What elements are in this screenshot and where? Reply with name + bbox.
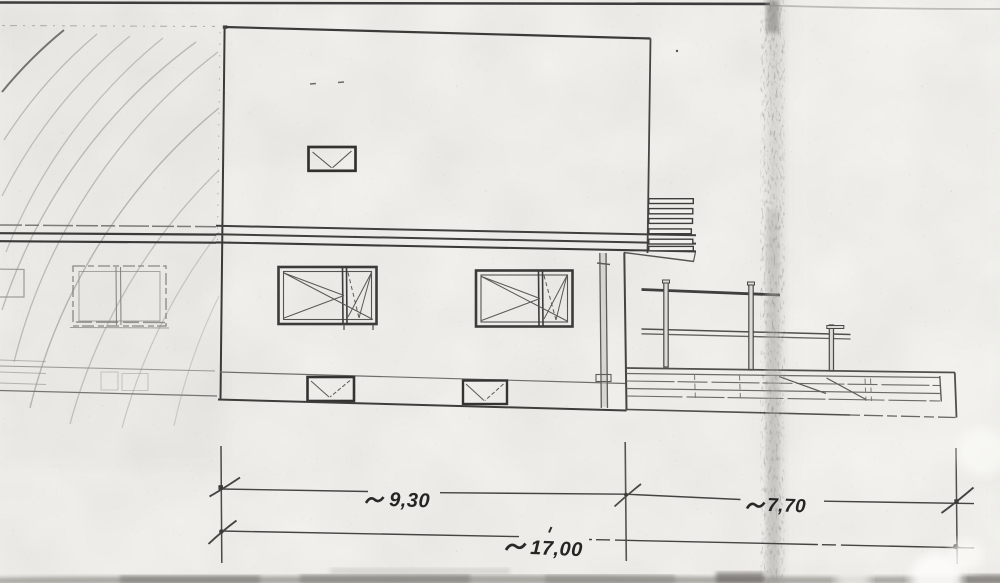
svg-text:17,00: 17,00 <box>530 537 583 561</box>
svg-text:9,30: 9,30 <box>389 489 431 512</box>
svg-text:7,70: 7,70 <box>767 495 807 517</box>
